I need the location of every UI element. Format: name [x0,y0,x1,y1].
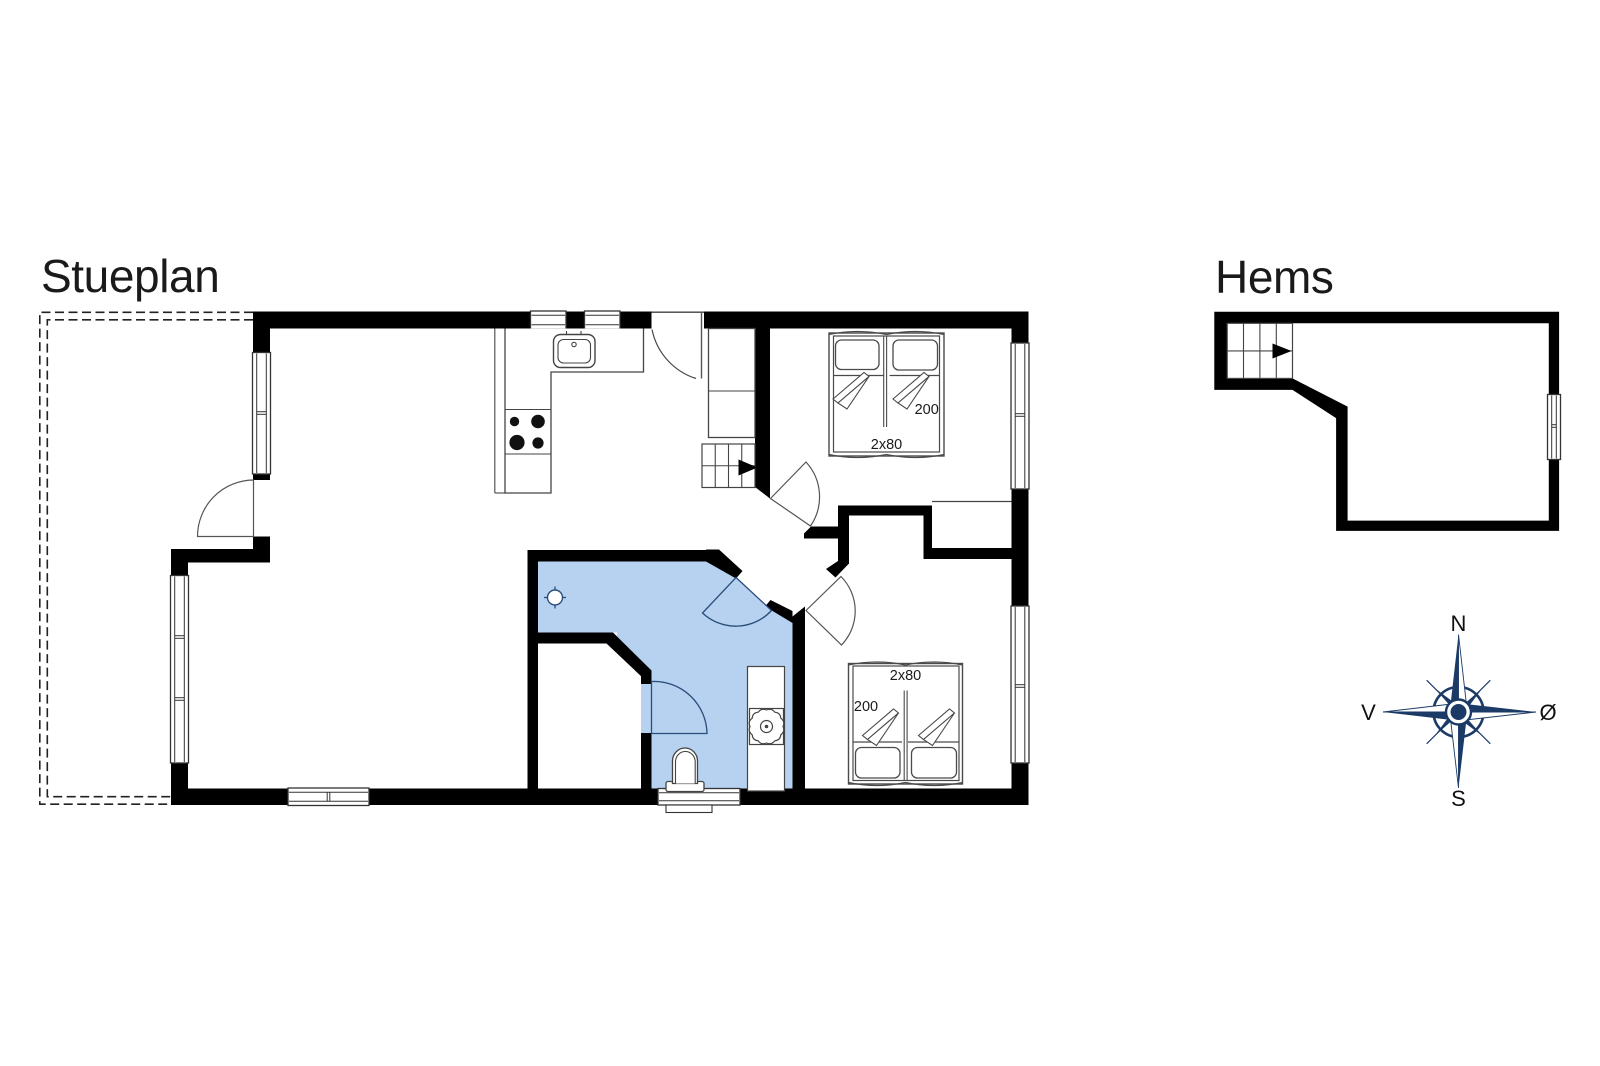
svg-text:200: 200 [854,699,878,715]
svg-text:S: S [1451,786,1466,811]
svg-text:Hems: Hems [1215,251,1334,303]
svg-text:N: N [1451,611,1467,636]
svg-text:2x80: 2x80 [890,668,921,684]
svg-text:Stueplan: Stueplan [41,250,219,302]
svg-text:2x80: 2x80 [871,437,902,453]
svg-text:200: 200 [915,402,939,418]
svg-text:V: V [1361,700,1376,725]
svg-text:Ø: Ø [1539,700,1556,725]
